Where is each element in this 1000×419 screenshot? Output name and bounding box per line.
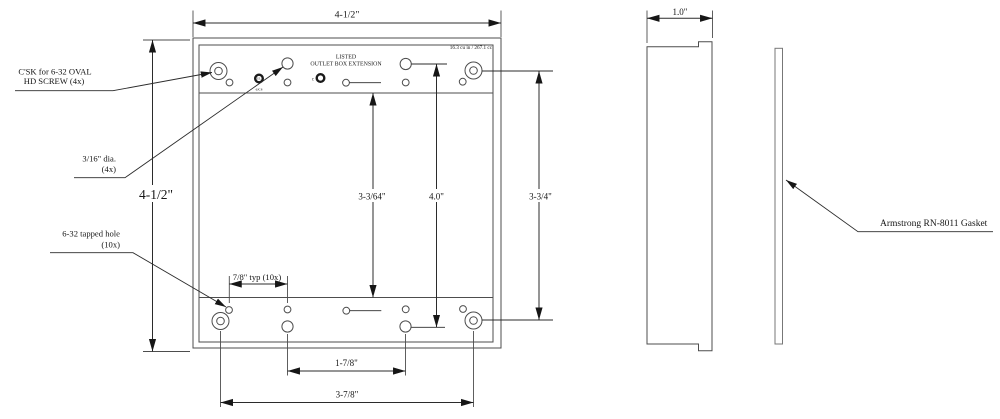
callout-dia-line2: (4x)	[102, 164, 116, 174]
callout-tapped-line2: (10x)	[101, 240, 120, 250]
volume-note: 16.3 cu in / 267.1 cc	[450, 45, 493, 51]
dim-inner-span-label: 1-7/8"	[335, 358, 358, 368]
cul-listing-stamp: c	[312, 73, 326, 83]
callout-csk-screw: C'SK for 6-32 OVAL HD SCREW (4x)	[15, 67, 212, 91]
callout-gasket-label: Armstrong RN-8011 Gasket	[880, 219, 988, 229]
callout-dia-hole: 3/16" dia. (4x)	[74, 67, 283, 178]
callout-dia-line1: 3/16" dia.	[82, 154, 116, 164]
dimension-tapped-pitch: 7/8" typ (10x)	[229, 272, 287, 303]
ul-code: 6JC8	[256, 88, 263, 92]
dimension-bottom-inner-span: 1-7/8"	[288, 334, 406, 376]
corner-screw-hole-bottom-left	[212, 313, 229, 330]
dimension-row-spacing: 3-3/64"	[350, 93, 394, 298]
corner-screw-hole-top-right	[465, 62, 482, 79]
technical-drawing: UL 6JC8 c LISTED OUTLET BOX EXTENSION 16…	[0, 0, 1000, 419]
gasket-outline	[775, 48, 783, 344]
callout-csk-line1: C'SK for 6-32 OVAL	[18, 67, 91, 77]
dim-width-label: 4-1/2"	[335, 10, 360, 21]
corner-screw-hole-top-left	[210, 63, 227, 80]
ul-letters: UL	[257, 78, 261, 81]
listed-text: LISTED	[336, 55, 357, 61]
dimension-width-top: 4-1/2"	[193, 10, 501, 38]
ul-listing-stamp: UL 6JC8	[254, 74, 264, 92]
dim-row-spacing-label: 3-3/64"	[358, 192, 385, 202]
callout-gasket: Armstrong RN-8011 Gasket	[786, 180, 993, 232]
cul-prefix: c	[312, 78, 314, 83]
dim-tapped-pitch-label: 7/8" typ (10x)	[233, 272, 282, 282]
side-view-outline	[647, 42, 712, 351]
dim-depth-label: 1.0"	[673, 7, 688, 17]
gasket-view	[775, 48, 783, 344]
drawing-canvas: UL 6JC8 c LISTED OUTLET BOX EXTENSION 16…	[0, 0, 1000, 419]
dim-height-label: 4-1/2"	[139, 187, 173, 202]
callout-tapped-leader	[50, 253, 226, 307]
dimension-device-hole-spacing: 4.0"	[423, 64, 451, 327]
callout-tapped-hole: 6-32 tapped hole (10x)	[50, 229, 226, 308]
dimension-height-left: 4-1/2"	[133, 40, 190, 352]
dim-outer-span-label: 3-7/8"	[336, 390, 359, 400]
outlet-box-extension-text: OUTLET BOX EXTENSION	[310, 62, 382, 68]
dim-device-spacing-label: 4.0"	[429, 192, 444, 202]
callout-tapped-line1: 6-32 tapped hole	[62, 229, 120, 239]
side-view: 1.0"	[647, 7, 713, 351]
corner-screw-hole-bottom-right	[465, 312, 482, 329]
callout-csk-line2: HD SCREW (4x)	[24, 76, 85, 86]
tapped-holes-bottom-row	[226, 306, 467, 315]
dimension-corner-hole-spacing-right: 3-3/4"	[523, 71, 558, 320]
dim-right-spacing-label: 3-3/4"	[529, 192, 552, 202]
